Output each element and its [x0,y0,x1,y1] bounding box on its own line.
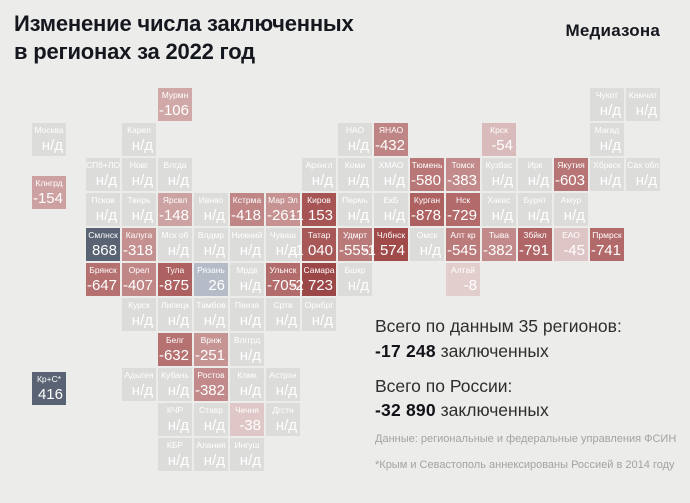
region-tile: Нск-729 [446,193,480,226]
region-abbr: КЧР [155,405,195,415]
region-abbr: Липецк [155,300,195,310]
region-abbr: Архнгл [299,160,339,170]
region-abbr: ЯНАО [371,125,411,135]
region-value: -318 [123,243,153,259]
region-tile: ЕАО-45 [554,228,588,261]
region-tile: Чечня-38 [230,403,264,436]
region-value: н/д [240,348,261,364]
region-tile: Влгдан/д [158,158,192,191]
data-source-note: Данные: региональные и федеральные управ… [375,433,676,445]
region-abbr: Сртв [263,300,303,310]
region-value: н/д [384,173,405,189]
region-abbr: Тула [155,265,195,275]
region-abbr: Карел [119,125,159,135]
region-tile: Ставрн/д [194,403,228,436]
region-tile: Омскн/д [410,228,444,261]
region-value: н/д [168,243,189,259]
region-tile: Бурятн/д [518,193,552,226]
region-value: -383 [447,173,477,189]
region-tile: Дгстнн/д [266,403,300,436]
region-abbr: Астрхн [263,370,303,380]
region-tile: Москван/д [32,123,66,156]
region-tile: Кстрма-418 [230,193,264,226]
summary-label-russia: Всего по России: [375,376,512,397]
region-value: н/д [204,313,225,329]
region-abbr: Смлнск [83,230,123,240]
region-tile: Ростов-382 [194,368,228,401]
region-tile: Мск обн/д [158,228,192,261]
summary-number: -17 248 [375,341,436,361]
region-tile: Амурн/д [554,193,588,226]
region-value: н/д [600,103,621,119]
region-value: н/д [348,278,369,294]
region-abbr: ЕкБ [371,195,411,205]
region-abbr: Якутия [551,160,591,170]
region-tile: Тула-875 [158,263,192,296]
region-value: -382 [195,383,225,399]
region-tile: Сртвн/д [266,298,300,331]
region-value: н/д [276,418,297,434]
region-value: -38 [239,418,261,434]
region-abbr: СПб+ЛО [83,160,123,170]
region-tile: Томск-383 [446,158,480,191]
region-abbr: Брянск [83,265,123,275]
region-tile: Липецкн/д [158,298,192,331]
region-tile: Алт кр-545 [446,228,480,261]
region-abbr: Дгстн [263,405,303,415]
region-abbr: Хбрвск [587,160,627,170]
region-abbr: Чечня [227,405,267,415]
region-value: -8 [464,278,477,294]
region-value: н/д [636,173,657,189]
region-value: -632 [159,348,189,364]
region-value: н/д [600,173,621,189]
region-abbr: ЕАО [551,230,591,240]
mediazona-logo: Медиазона [566,21,660,41]
region-abbr: Мурмн [155,90,195,100]
region-tile: Калуга-318 [122,228,156,261]
region-value: н/д [42,138,63,154]
region-abbr: Клнгрд [29,178,69,188]
region-tile: Тверьн/д [122,193,156,226]
region-value: н/д [204,453,225,469]
region-tile: Влггрдн/д [230,333,264,366]
summary-value-russia: -32 890 заключенных [375,400,549,421]
region-abbr: Бурят [515,195,555,205]
region-abbr: КБР [155,440,195,450]
region-value: н/д [240,243,261,259]
region-value: н/д [204,418,225,434]
region-value: -647 [87,278,117,294]
region-value: н/д [276,383,297,399]
region-value: -603 [555,173,585,189]
region-tile: Татар-1 040 [302,228,336,261]
region-tile: Кузбасн/д [482,158,516,191]
region-tile: Ярсвл-148 [158,193,192,226]
region-value: н/д [420,243,441,259]
region-abbr: Мск об [155,230,195,240]
region-abbr: Адыгея [119,370,159,380]
region-value: н/д [132,383,153,399]
region-abbr: НАО [335,125,375,135]
region-abbr: Кр+С* [29,374,69,384]
region-abbr: Крск [479,125,519,135]
region-abbr: Ирк [515,160,555,170]
region-value: н/д [528,173,549,189]
region-value: -729 [447,208,477,224]
region-abbr: Чукот [587,90,627,100]
region-tile: Чукотн/д [590,88,624,121]
region-abbr: ХМАО [371,160,411,170]
region-tile: Прмрск-741 [590,228,624,261]
region-abbr: Чуваш [263,230,303,240]
summary-label-regions: Всего по данным 35 регионов: [375,316,622,337]
region-abbr: Омск [407,230,447,240]
region-value: -741 [591,243,621,259]
region-value: н/д [96,173,117,189]
region-abbr: Клмк [227,370,267,380]
region-value: н/д [168,418,189,434]
region-tile: Тамбовн/д [194,298,228,331]
region-abbr: Кузбас [479,160,519,170]
region-tile: Новгн/д [122,158,156,191]
region-tile: Аланиян/д [194,438,228,471]
region-tile: Хакасн/д [482,193,516,226]
region-abbr: Ивнво [191,195,231,205]
region-abbr: Ульнск [263,265,303,275]
region-value: н/д [132,173,153,189]
region-abbr: Пермь [335,195,375,205]
summary-number: -32 890 [375,400,436,420]
region-value: н/д [204,243,225,259]
region-value: н/д [312,173,333,189]
infographic-root: Изменение числа заключенных в регионах з… [0,0,690,503]
summary-suffix: заключенных [436,341,549,361]
region-abbr: Тверь [119,195,159,205]
region-tile: Мрдвн/д [230,263,264,296]
region-tile: Крск-54 [482,123,516,156]
region-abbr: Тамбов [191,300,231,310]
region-value: -791 [519,243,549,259]
region-tile: Курган-878 [410,193,444,226]
region-tile: Иркн/д [518,158,552,191]
region-tile: Клнгрд-154 [32,176,66,209]
region-value: -580 [411,173,441,189]
region-tile: Брянск-647 [86,263,120,296]
region-abbr: Алания [191,440,231,450]
region-value: -154 [33,191,63,207]
region-value: н/д [528,208,549,224]
region-value: 868 [92,243,117,259]
region-value: н/д [204,208,225,224]
region-tile: Рязань26 [194,263,228,296]
region-abbr: Нск [443,195,483,205]
region-abbr: Камчат [623,90,663,100]
region-value: -878 [411,208,441,224]
region-value: -106 [159,103,189,119]
region-value: н/д [240,313,261,329]
region-tile: КБРн/д [158,438,192,471]
region-tile: Карелн/д [122,123,156,156]
page-title: Изменение числа заключенных в регионах з… [14,10,354,66]
region-tile: Ивнвон/д [194,193,228,226]
region-abbr: Мрдв [227,265,267,275]
region-abbr: Ярсвл [155,195,195,205]
region-value: -54 [491,138,513,154]
region-value: н/д [348,208,369,224]
region-abbr: Ингуш [227,440,267,450]
region-value: н/д [168,453,189,469]
region-tile: СПб+ЛОн/д [86,158,120,191]
region-tile: Самара-2 723 [302,263,336,296]
region-abbr: Сах обл [623,160,663,170]
region-tile: Хбрвскн/д [590,158,624,191]
crimea-footnote: *Крым и Севастополь аннексированы Россие… [375,459,675,471]
region-tile: Члбнск-1 574 [374,228,408,261]
region-tile: ЯНАО-432 [374,123,408,156]
region-abbr: Прмрск [587,230,627,240]
region-value: -148 [159,208,189,224]
region-value: н/д [348,138,369,154]
region-abbr: Члбнск [371,230,411,240]
region-value: -2 723 [290,278,333,294]
region-value: -418 [231,208,261,224]
region-tile: Кр+С*416 [32,372,66,405]
region-tile: Клмкн/д [230,368,264,401]
region-value: н/д [312,313,333,329]
region-tile: ХМАОн/д [374,158,408,191]
region-value: -45 [563,243,585,259]
region-abbr: Кстрма [227,195,267,205]
region-abbr: Тюмень [407,160,447,170]
summary-value-regions: -17 248 заключенных [375,341,549,362]
region-value: н/д [168,313,189,329]
region-value: н/д [276,313,297,329]
region-value: н/д [240,453,261,469]
region-tile: Архнглн/д [302,158,336,191]
region-abbr: Коми [335,160,375,170]
region-tile: Комин/д [338,158,372,191]
region-tile: Сах облн/д [626,158,660,191]
region-abbr: Алт кр [443,230,483,240]
region-abbr: Калуга [119,230,159,240]
region-abbr: Самара [299,265,339,275]
region-tile: Збйкл-791 [518,228,552,261]
region-tile: Белг-632 [158,333,192,366]
region-abbr: Кубань [155,370,195,380]
region-abbr: Збйкл [515,230,555,240]
region-abbr: Влггрд [227,335,267,345]
region-abbr: Рязань [191,265,231,275]
region-value: 416 [38,387,63,403]
region-tile: Мурмн-106 [158,88,192,121]
region-abbr: Влгда [155,160,195,170]
region-tile: Тыва-382 [482,228,516,261]
region-abbr: Курск [119,300,159,310]
region-tile: Астрхнн/д [266,368,300,401]
region-tile: Пермьн/д [338,193,372,226]
region-value: н/д [564,208,585,224]
region-abbr: Удмрт [335,230,375,240]
region-tile: Киров-1 153 [302,193,336,226]
region-value: -875 [159,278,189,294]
region-abbr: Хакас [479,195,519,205]
region-tile: Камчатн/д [626,88,660,121]
region-tile: Псковн/д [86,193,120,226]
region-abbr: Орнбрг [299,300,339,310]
region-value: -407 [123,278,153,294]
region-tile: Нижнийн/д [230,228,264,261]
region-value: -382 [483,243,513,259]
region-tile: Бшкрн/д [338,263,372,296]
region-value: н/д [96,208,117,224]
region-tile: Курскн/д [122,298,156,331]
region-value: н/д [132,313,153,329]
region-value: н/д [132,138,153,154]
region-value: н/д [168,383,189,399]
region-abbr: Пенза [227,300,267,310]
region-abbr: Врнж [191,335,231,345]
summary-suffix: заключенных [436,400,549,420]
region-value: н/д [636,103,657,119]
region-tile: Тюмень-580 [410,158,444,191]
region-abbr: Москва [29,125,69,135]
region-value: н/д [240,383,261,399]
region-tile: Кубаньн/д [158,368,192,401]
region-abbr: Магад [587,125,627,135]
region-abbr: Псков [83,195,123,205]
region-value: -545 [447,243,477,259]
region-value: н/д [348,173,369,189]
region-abbr: Тыва [479,230,519,240]
region-abbr: Мар Эл [263,195,303,205]
region-value: н/д [132,208,153,224]
region-abbr: Курган [407,195,447,205]
region-tile: Якутия-603 [554,158,588,191]
region-abbr: Амур [551,195,591,205]
region-value: н/д [600,138,621,154]
region-value: н/д [384,208,405,224]
region-value: н/д [492,173,513,189]
region-value: н/д [168,173,189,189]
region-tile: Ингушн/д [230,438,264,471]
region-abbr: Новг [119,160,159,170]
region-tile: ЕкБн/д [374,193,408,226]
region-value: -1 153 [290,208,333,224]
region-value: н/д [240,278,261,294]
region-tile: НАОн/д [338,123,372,156]
region-abbr: Томск [443,160,483,170]
region-tile: Пензан/д [230,298,264,331]
region-tile: Алтай-8 [446,263,480,296]
region-tile: Орнбргн/д [302,298,336,331]
region-tile: Влдмрн/д [194,228,228,261]
region-tile: Смлнск868 [86,228,120,261]
region-abbr: Влдмр [191,230,231,240]
region-abbr: Алтай [443,265,483,275]
region-tile: Врнж-251 [194,333,228,366]
region-tile: Магадн/д [590,123,624,156]
region-value: -432 [375,138,405,154]
region-abbr: Нижний [227,230,267,240]
region-tile: Адыгеян/д [122,368,156,401]
region-value: -1 574 [362,243,405,259]
region-value: -1 040 [290,243,333,259]
region-abbr: Киров [299,195,339,205]
region-abbr: Ростов [191,370,231,380]
region-abbr: Бшкр [335,265,375,275]
region-abbr: Орел [119,265,159,275]
region-value: -251 [195,348,225,364]
region-abbr: Белг [155,335,195,345]
region-abbr: Ставр [191,405,231,415]
region-value: н/д [492,208,513,224]
region-tile: Орел-407 [122,263,156,296]
region-abbr: Татар [299,230,339,240]
region-tile: КЧРн/д [158,403,192,436]
region-value: 26 [208,278,225,294]
